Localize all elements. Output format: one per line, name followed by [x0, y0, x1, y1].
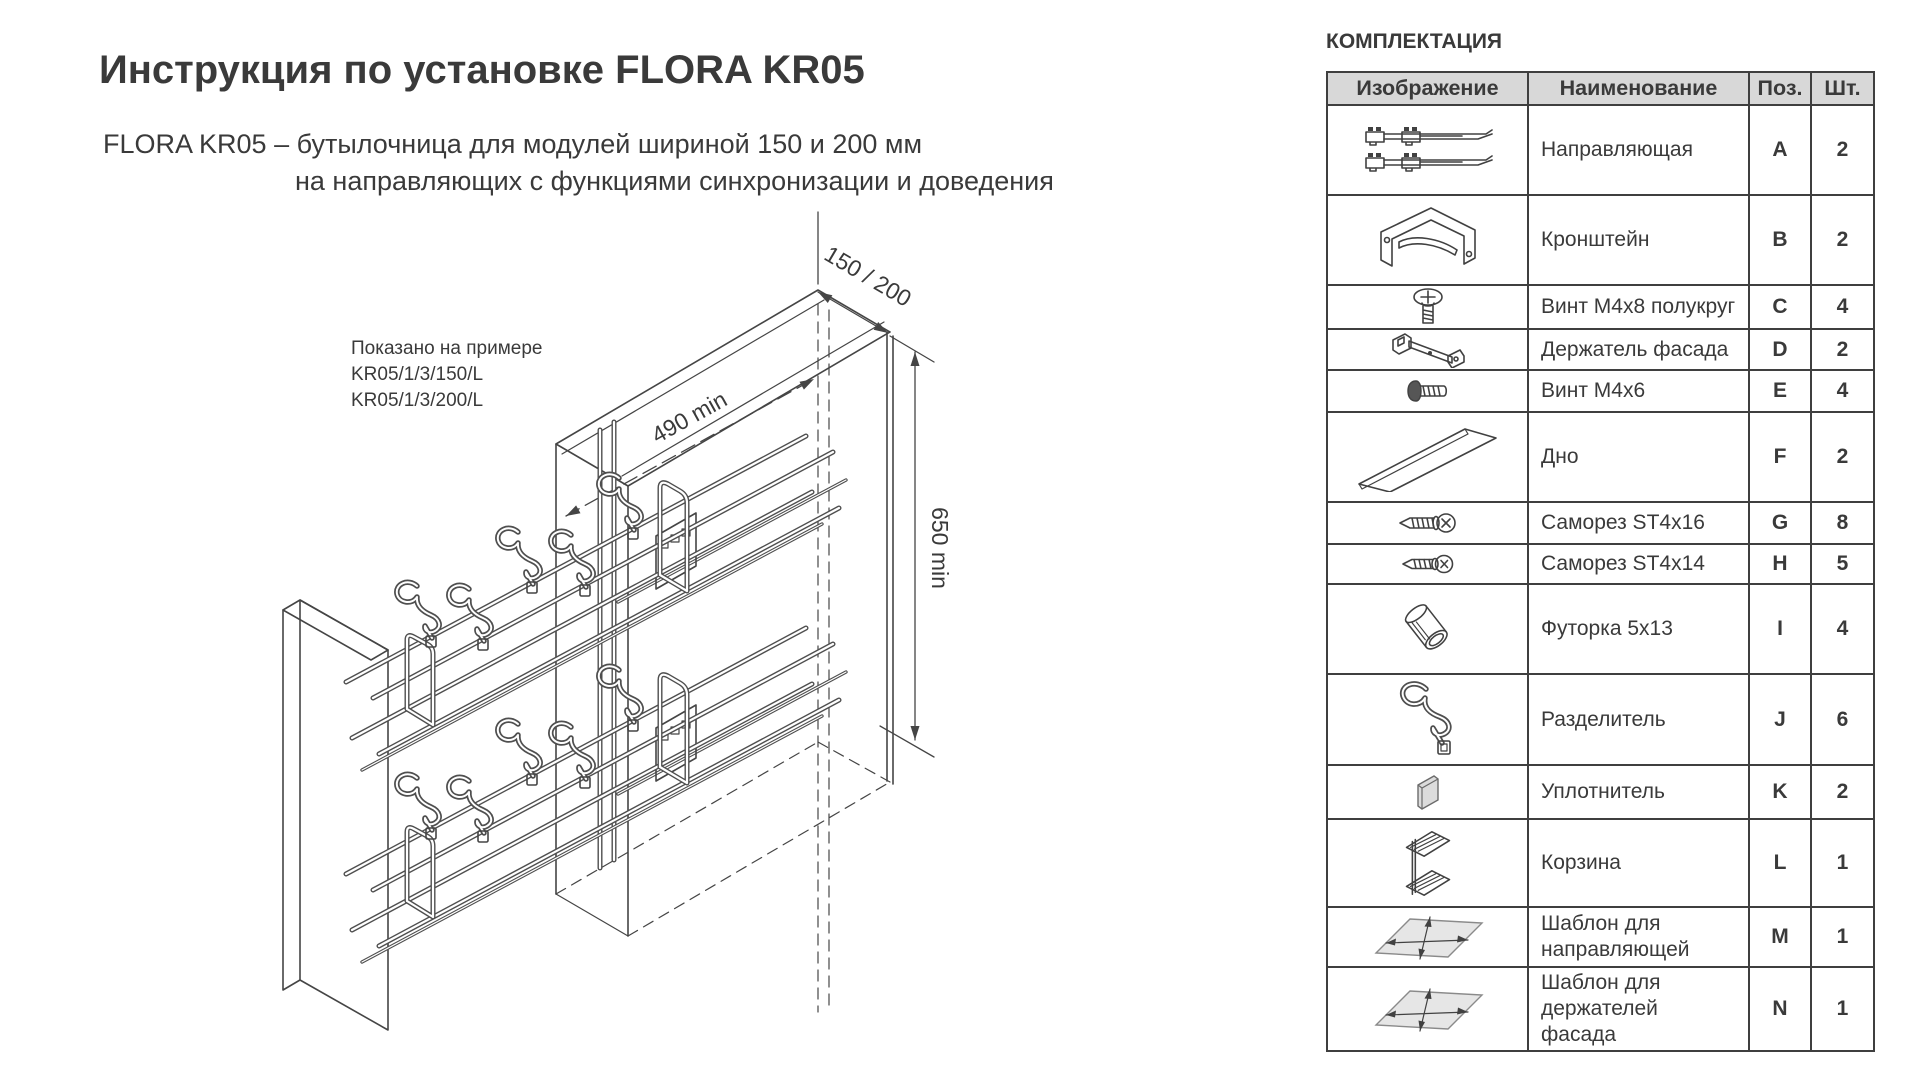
part-name: Кронштейн — [1528, 195, 1749, 285]
part-image-cell — [1327, 502, 1528, 544]
dim-depth-label: 490 min — [647, 386, 731, 448]
part-row-K: УплотнительK2 — [1327, 765, 1874, 819]
part-row-D: Держатель фасадаD2 — [1327, 329, 1874, 370]
part-name: Разделитель — [1528, 674, 1749, 765]
part-row-E: Винт M4x6E4 — [1327, 370, 1874, 412]
facade-holder-icon — [1390, 332, 1466, 368]
part-pos: K — [1749, 765, 1811, 819]
facade-panel — [283, 600, 388, 1030]
part-image-cell — [1327, 105, 1528, 195]
part-row-F: ДноF2 — [1327, 412, 1874, 502]
part-qty: 8 — [1811, 502, 1874, 544]
screw-st4x14-icon — [1401, 552, 1455, 576]
part-name: Винт M4x6 — [1528, 370, 1749, 412]
note-line3: KR05/1/3/200/L — [351, 388, 543, 414]
subtitle-line1: FLORA KR05 – бутылочница для модулей шир… — [103, 129, 922, 159]
screw-st4x16-icon — [1398, 510, 1458, 536]
part-qty: 2 — [1811, 195, 1874, 285]
part-name: Саморез ST4x16 — [1528, 502, 1749, 544]
header-pos: Поз. — [1749, 72, 1811, 105]
part-name: Футорка 5x13 — [1528, 584, 1749, 674]
part-pos: N — [1749, 967, 1811, 1051]
part-pos: H — [1749, 544, 1811, 584]
part-name: Направляющая — [1528, 105, 1749, 195]
part-name: Шаблон для направляющей — [1528, 907, 1749, 967]
part-image-cell — [1327, 819, 1528, 907]
part-row-N: Шаблон для держателей фасадаN1 — [1327, 967, 1874, 1051]
bottom-strip-icon — [1353, 422, 1503, 492]
bracket-icon — [1369, 202, 1487, 278]
seal-icon — [1413, 773, 1443, 811]
parts-table-title: КОМПЛЕКТАЦИЯ — [1326, 30, 1502, 54]
header-image: Изображение — [1327, 72, 1528, 105]
basket-tier-upper — [346, 436, 839, 770]
part-image-cell — [1327, 285, 1528, 329]
part-row-G: Саморез ST4x16G8 — [1327, 502, 1874, 544]
part-image-cell — [1327, 765, 1528, 819]
subtitle: FLORA KR05 – бутылочница для модулей шир… — [103, 126, 1054, 200]
slide-rail-assembly-upper — [618, 480, 846, 602]
part-pos: B — [1749, 195, 1811, 285]
template-rails-icon — [1370, 913, 1486, 961]
part-qty: 5 — [1811, 544, 1874, 584]
part-pos: A — [1749, 105, 1811, 195]
slide-rail-assembly-lower — [618, 672, 846, 794]
screw-round-icon — [1410, 287, 1446, 327]
note-line2: KR05/1/3/150/L — [351, 362, 543, 388]
part-pos: J — [1749, 674, 1811, 765]
parts-table: Изображение Наименование Поз. Шт. Направ… — [1326, 71, 1875, 1052]
parts-table-header-row: Изображение Наименование Поз. Шт. — [1327, 72, 1874, 105]
part-pos: M — [1749, 907, 1811, 967]
dimension-height: 650 min — [880, 336, 953, 757]
part-image-cell — [1327, 195, 1528, 285]
part-pos: E — [1749, 370, 1811, 412]
part-qty: 6 — [1811, 674, 1874, 765]
page-title: Инструкция по установке FLORA KR05 — [99, 48, 865, 93]
part-name: Держатель фасада — [1528, 329, 1749, 370]
part-pos: L — [1749, 819, 1811, 907]
note-line1: Показано на примере — [351, 336, 543, 362]
dim-height-label: 650 min — [927, 507, 953, 589]
basket-icon — [1402, 822, 1454, 904]
dimension-width: 150 / 200 — [818, 212, 916, 333]
part-row-L: КорзинаL1 — [1327, 819, 1874, 907]
part-qty: 1 — [1811, 907, 1874, 967]
screw-m4x6-icon — [1406, 378, 1450, 404]
part-row-J: РазделительJ6 — [1327, 674, 1874, 765]
part-image-cell — [1327, 674, 1528, 765]
part-name: Уплотнитель — [1528, 765, 1749, 819]
part-row-M: Шаблон для направляющейM1 — [1327, 907, 1874, 967]
divider-icon — [1396, 681, 1460, 759]
part-row-I: Футорка 5x13I4 — [1327, 584, 1874, 674]
part-name: Корзина — [1528, 819, 1749, 907]
drawing-note: Показано на примере KR05/1/3/150/L KR05/… — [351, 336, 543, 414]
pullout-basket-unit — [346, 422, 839, 962]
part-name: Дно — [1528, 412, 1749, 502]
part-row-H: Саморез ST4x14H5 — [1327, 544, 1874, 584]
part-image-cell — [1327, 584, 1528, 674]
header-qty: Шт. — [1811, 72, 1874, 105]
part-qty: 2 — [1811, 765, 1874, 819]
sleeve-icon — [1395, 597, 1461, 661]
part-row-A: НаправляющаяA2 — [1327, 105, 1874, 195]
part-qty: 1 — [1811, 967, 1874, 1051]
part-name: Шаблон для держателей фасада — [1528, 967, 1749, 1051]
part-row-C: Винт M4x8 полукругC4 — [1327, 285, 1874, 329]
part-qty: 2 — [1811, 105, 1874, 195]
part-qty: 1 — [1811, 819, 1874, 907]
installation-drawing: 490 min 150 / 200 650 min — [255, 190, 965, 1060]
part-qty: 2 — [1811, 329, 1874, 370]
part-image-cell — [1327, 544, 1528, 584]
template-facade-icon — [1370, 985, 1486, 1033]
part-image-cell — [1327, 329, 1528, 370]
part-name: Винт M4x8 полукруг — [1528, 285, 1749, 329]
rails-pair-icon — [1362, 125, 1494, 175]
part-pos: D — [1749, 329, 1811, 370]
part-qty: 2 — [1811, 412, 1874, 502]
part-row-B: КронштейнB2 — [1327, 195, 1874, 285]
basket-tier-lower — [346, 628, 839, 962]
part-pos: F — [1749, 412, 1811, 502]
part-image-cell — [1327, 412, 1528, 502]
part-image-cell — [1327, 907, 1528, 967]
header-name: Наименование — [1528, 72, 1749, 105]
part-qty: 4 — [1811, 285, 1874, 329]
part-image-cell — [1327, 370, 1528, 412]
part-pos: I — [1749, 584, 1811, 674]
part-pos: C — [1749, 285, 1811, 329]
part-name: Саморез ST4x14 — [1528, 544, 1749, 584]
part-image-cell — [1327, 967, 1528, 1051]
part-pos: G — [1749, 502, 1811, 544]
part-qty: 4 — [1811, 584, 1874, 674]
part-qty: 4 — [1811, 370, 1874, 412]
